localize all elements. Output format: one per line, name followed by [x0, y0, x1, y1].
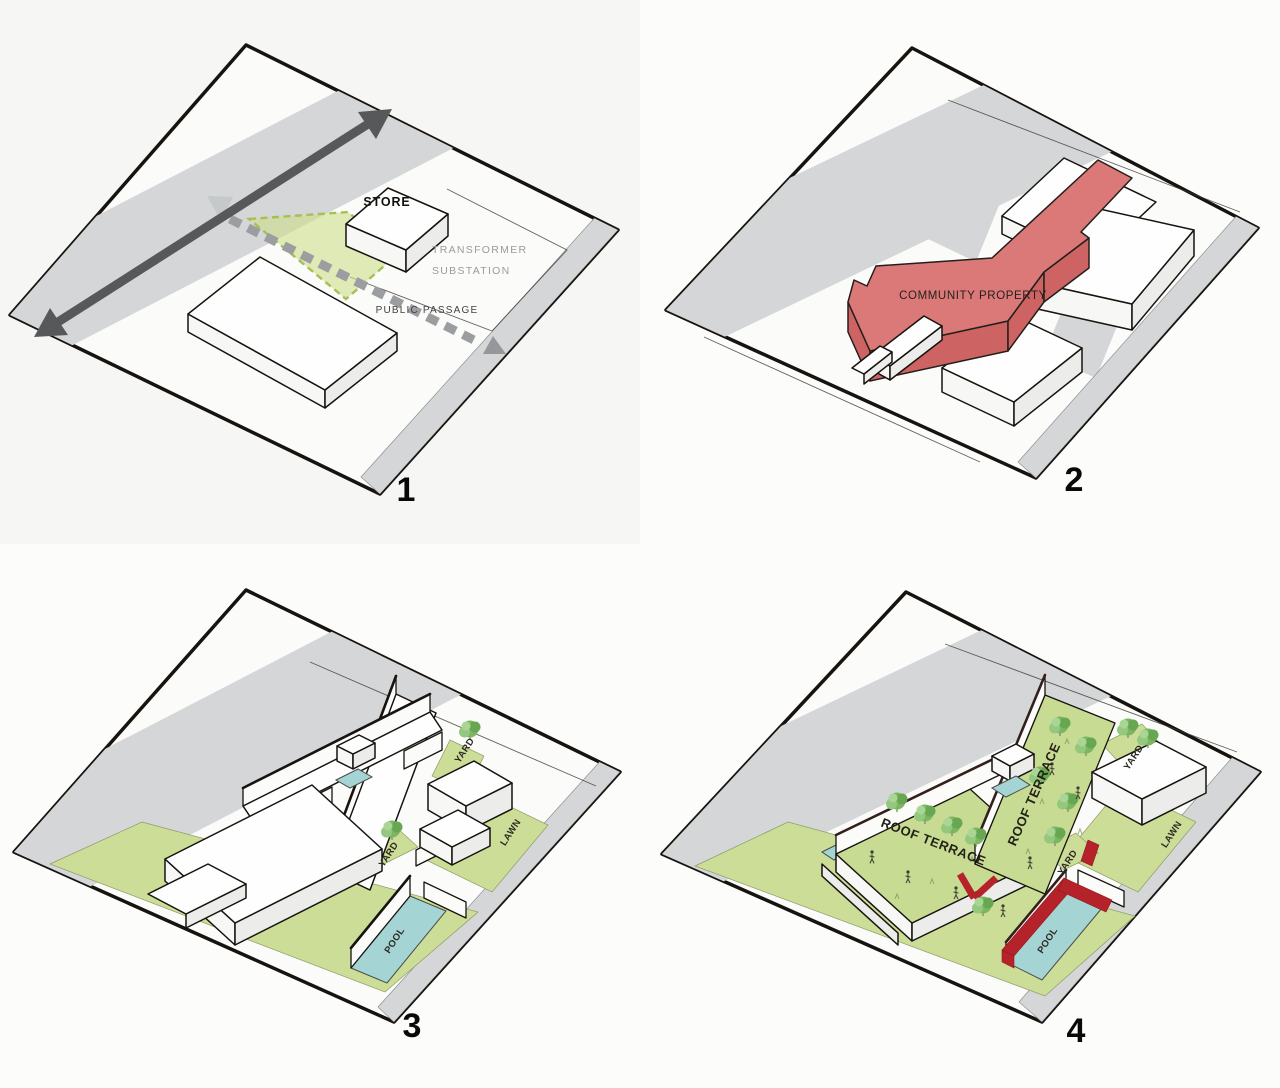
panel-community-property: COMMUNITY PROPERTY 2 [640, 0, 1280, 544]
community-property-label: COMMUNITY PROPERTY [899, 290, 1047, 302]
panel-massing-yards: YARD YARD LAWN POOL 3 [0, 544, 640, 1088]
panel-2-drawing: COMMUNITY PROPERTY 2 [640, 0, 1280, 544]
diagram-sheet: { "document": { "type": "architectural-c… [0, 0, 1280, 1088]
panel-number: 2 [1065, 461, 1084, 499]
panel-number: 1 [397, 471, 416, 509]
panel-existing-site: STORE TRANSFORMER SUBSTATION PUBLIC PASS… [0, 0, 640, 544]
panel-number: 4 [1067, 1012, 1086, 1050]
panel-number: 3 [403, 1007, 422, 1045]
store-label: STORE [363, 195, 410, 209]
panel-3-drawing: YARD YARD LAWN POOL 3 [0, 544, 640, 1088]
transformer-label-line1: TRANSFORMER [432, 244, 527, 256]
public-passage-label: PUBLIC PASSAGE [376, 305, 479, 316]
panel-roof-terraces: ROOF TERRACE ROOF TERRACE YARD YARD LAWN… [640, 544, 1280, 1088]
transformer-label-line2: SUBSTATION [432, 265, 511, 277]
panel-4-drawing: ROOF TERRACE ROOF TERRACE YARD YARD LAWN… [640, 544, 1280, 1088]
panel-1-drawing: STORE TRANSFORMER SUBSTATION PUBLIC PASS… [0, 0, 640, 544]
